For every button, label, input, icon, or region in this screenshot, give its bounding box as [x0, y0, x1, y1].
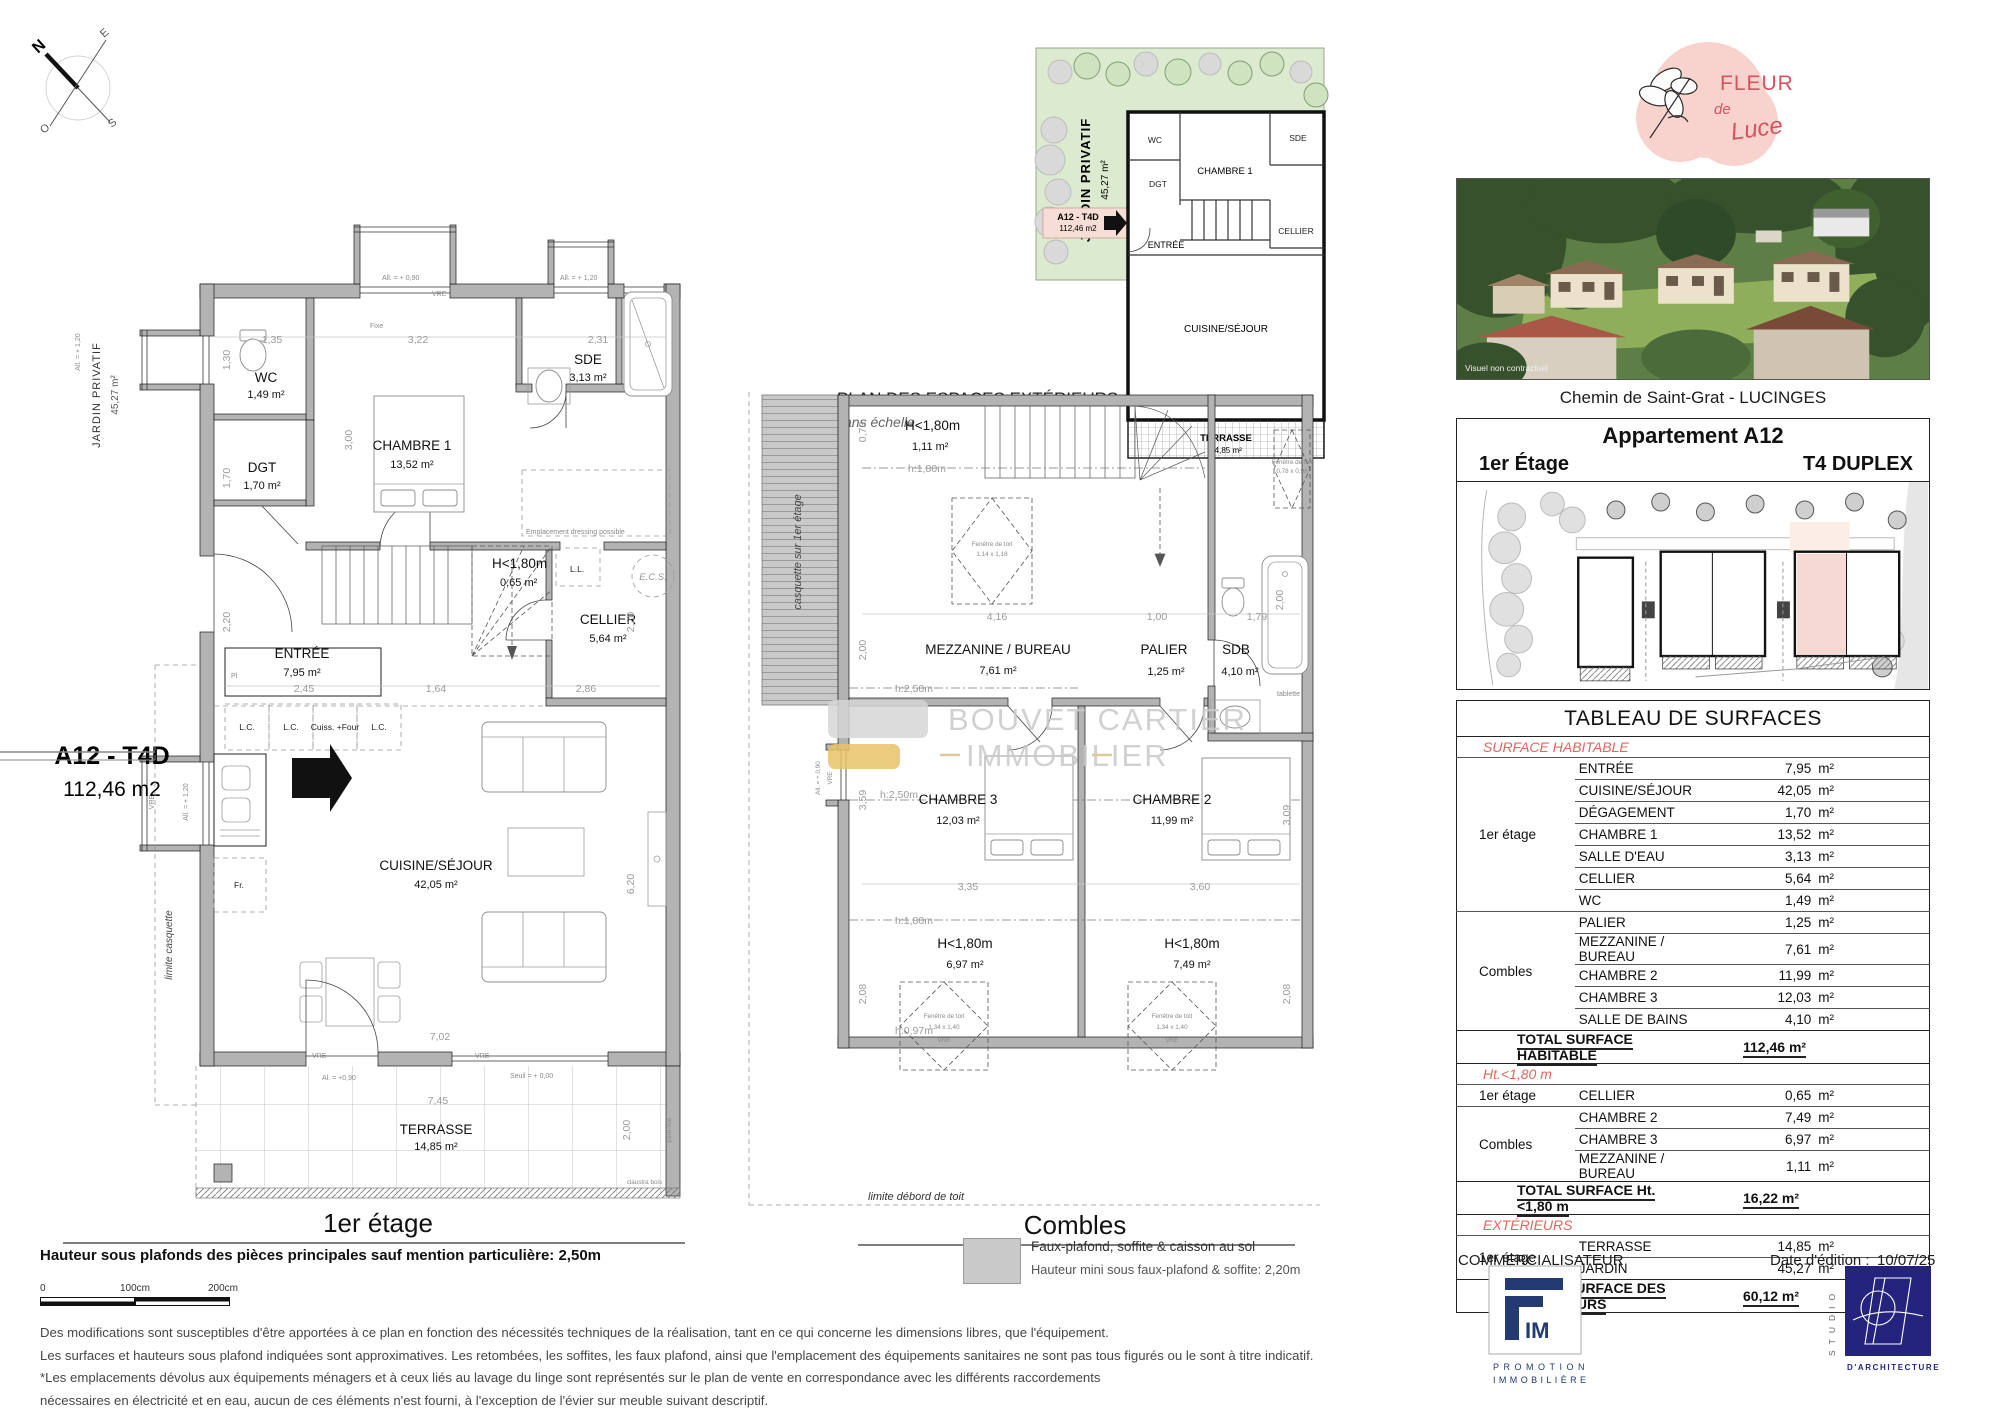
surface-room-value: 1,49 [1693, 890, 1811, 912]
dgt-label: DGT [248, 460, 277, 475]
surface-total-value: 112,46 m² [1693, 1031, 1930, 1064]
wc-label: WC [255, 370, 278, 385]
dim: 1,70 [221, 468, 233, 489]
surface-row: 1er étageCELLIER0,65m² [1457, 1085, 1930, 1107]
roof-window-label: Fenêtre de toit [972, 541, 1013, 548]
roof-window-stairs: Fenêtre de toit 1,14 x 1,18 [952, 498, 1032, 604]
ext-sde: SDE [1289, 133, 1307, 143]
scale-0: 0 [40, 1283, 46, 1294]
surface-room-value: 7,95 [1693, 758, 1811, 780]
kitchen-lc2: L.C. [283, 722, 299, 732]
sdb-bathtub [1262, 556, 1308, 674]
surface-row: ComblesCHAMBRE 27,49m² [1457, 1107, 1930, 1129]
surface-room-unit: m² [1811, 846, 1929, 868]
dim: 3,22 [408, 334, 429, 346]
chambre2-label: CHAMBRE 2 [1133, 792, 1212, 807]
ext-ch1: CHAMBRE 1 [1197, 166, 1252, 177]
surface-section-label: Ht.<1,80 m [1457, 1064, 1930, 1085]
combles-vre: VRE [827, 772, 834, 785]
legend-line1: Faux-plafond, soffite & caisson au sol [1031, 1239, 1255, 1254]
h097-line-label: h:0,97m [895, 1025, 933, 1037]
unit-area-label: 112,46 m2 [63, 778, 161, 801]
entree-area: 7,95 m² [283, 667, 321, 679]
bed-chambre2 [1202, 758, 1290, 860]
h180-zone2-area: 7,49 m² [1173, 959, 1211, 971]
site-unit-highlight [1797, 554, 1847, 654]
site-buildings [1578, 552, 1899, 667]
fixe-label: Fixe [370, 323, 383, 330]
brand-word1: FLEUR [1720, 72, 1794, 95]
wc-area: 1,49 m² [247, 389, 285, 401]
ext-cellier: CELLIER [1278, 226, 1313, 236]
roof-window-ch2: Fenêtre de toit 1,34 x 1,40 VRE [1128, 982, 1216, 1070]
plans-canvas: N E S O All. = + 0,90 Al [0, 0, 1440, 1413]
dim: 2,00 [1274, 590, 1286, 611]
dim: 6,20 [625, 874, 637, 895]
surface-room-value: 42,05 [1693, 780, 1811, 802]
chambre3-label: CHAMBRE 3 [919, 792, 998, 807]
apartment-type: T4 DUPLEX [1803, 453, 1913, 476]
sdb-wc [1222, 578, 1244, 616]
unit-code-label: A12 - T4D [54, 742, 169, 770]
surface-section-label: EXTÉRIEURS [1457, 1215, 1930, 1236]
surface-section-label: SURFACE HABITABLE [1457, 737, 1930, 758]
surface-room-label: CHAMBRE 3 [1575, 1129, 1693, 1151]
surface-room-unit: m² [1811, 758, 1929, 780]
surface-room-label: WC [1575, 890, 1693, 912]
scale-200: 200cm [208, 1283, 238, 1294]
surface-group-label: 1er étage [1457, 1085, 1575, 1107]
terrasse-label: TERRASSE [400, 1122, 473, 1137]
legend-swatch [963, 1238, 1021, 1284]
surface-section-row: SURFACE HABITABLE [1457, 737, 1930, 758]
scale-100: 100cm [120, 1283, 150, 1294]
scale-segment [135, 1297, 230, 1306]
limite-debord-label: limite débord de toit [868, 1191, 965, 1203]
surface-room-unit: m² [1811, 824, 1929, 846]
dim: 2,20 [221, 612, 233, 633]
surface-total-value-text: 16,22 m² [1743, 1190, 1799, 1209]
terrasse: VRE VRE Al. = +0,90 Seuil = + 0,00 7,45 … [196, 1053, 680, 1198]
combles-h180-area: 1,11 m² [912, 441, 949, 453]
dim: 2,86 [576, 683, 597, 695]
floor-plan-combles: casquette sur 1er étage limite débord de… [749, 392, 1320, 1245]
surface-total-row: TOTAL SURFACE HABITABLE112,46 m² [1457, 1031, 1930, 1064]
mezzanine-area: 7,61 m² [979, 665, 1017, 677]
floor-plan-1er-etage: All. = + 0,90 All. = + 1,20 VRE Fixe All… [0, 225, 685, 1243]
surface-group-label: Combles [1457, 1107, 1575, 1182]
site-plan [1457, 482, 1928, 689]
surface-total-row: TOTAL SURFACE Ht. <1,80 m16,22 m² [1457, 1182, 1930, 1215]
sdb-area: 4,10 m² [1221, 666, 1259, 678]
surface-room-label: MEZZANINE / BUREAU [1575, 934, 1693, 965]
surfaces-table-title: TABLEAU DE SURFACES [1457, 701, 1930, 737]
sde-label: SDE [574, 352, 602, 367]
sde-area: 3,13 m² [569, 372, 607, 384]
dim: 1,64 [426, 683, 447, 695]
ext-wc: WC [1148, 135, 1162, 145]
apartment-card: Appartement A12 1er Étage T4 DUPLEX [1456, 418, 1930, 690]
surface-room-value: 12,03 [1693, 987, 1811, 1009]
dim: 2,20 [625, 612, 637, 633]
dim: 7,02 [430, 1031, 451, 1043]
dim: 1,00 [1147, 611, 1168, 623]
compass-e: E [98, 26, 111, 40]
studio-vertical-text: STUDIO [1827, 1288, 1837, 1356]
ext-jardin-area: 45,27 m² [1100, 160, 1111, 200]
sdb-label: SDB [1222, 642, 1250, 657]
surface-room-unit: m² [1811, 1151, 1929, 1182]
staircase [322, 546, 472, 624]
dim: 3,59 [857, 790, 869, 811]
surface-room-label: CELLIER [1575, 868, 1693, 890]
surface-room-value: 13,52 [1693, 824, 1811, 846]
roof-window-vre: VRE [938, 1037, 951, 1044]
watermark-line2: IMMOBILIER [966, 738, 1169, 773]
fim-line2: IMMOBILIÈRE [1493, 1375, 1589, 1385]
surface-room-unit: m² [1811, 1107, 1929, 1129]
surface-room-unit: m² [1811, 965, 1929, 987]
surface-room-unit: m² [1811, 890, 1929, 912]
combles-h180-label: H<1,80m [905, 418, 960, 433]
surface-room-value: 1,11 [1693, 1151, 1811, 1182]
surface-room-value: 5,64 [1693, 868, 1811, 890]
chambre1-area: 13,52 m² [390, 459, 434, 471]
h180-zone2-label: H<1,80m [1164, 936, 1219, 951]
surfaces-table: TABLEAU DE SURFACES SURFACE HABITABLE1er… [1456, 700, 1930, 1313]
surface-room-unit: m² [1811, 1009, 1929, 1031]
tv-board [648, 812, 666, 906]
cuisine-area: 42,05 m² [414, 879, 458, 891]
apartment-title: Appartement A12 [1457, 423, 1929, 449]
studio-bottom-text: D'ARCHITECTURE [1847, 1363, 1940, 1372]
h180-zone3-label: H<1,80m [937, 936, 992, 951]
scale-bar: 0 100cm 200cm [40, 1283, 260, 1313]
surface-total-value-text: 60,12 m² [1743, 1288, 1799, 1307]
roof-window-label: Fenêtre de toit [1272, 459, 1313, 466]
dim: 4,16 [987, 611, 1008, 623]
surface-room-unit: m² [1811, 1129, 1929, 1151]
brand-word2: de [1714, 101, 1731, 118]
h250-line-label2: h:2,50m [880, 789, 918, 801]
sofa-1 [482, 722, 606, 792]
fim-logo: IM PROMOTION IMMOBILIÈRE [1485, 1264, 1605, 1394]
kitchen-lc3: L.C. [371, 722, 387, 732]
allege-120-label: All. = + 1,20 [560, 275, 597, 282]
compass-o: O [38, 121, 53, 136]
dim: 3,60 [1190, 881, 1211, 893]
dim: 7,45 [428, 1095, 449, 1107]
apartment-card-header: Appartement A12 1er Étage T4 DUPLEX [1457, 419, 1929, 482]
lave-linge-label: L.L. [570, 564, 584, 574]
vre-label: VRE [432, 291, 447, 298]
combles-all090: All. = + 0,90 [815, 761, 822, 795]
surfaces-table-title-row: TABLEAU DE SURFACES [1457, 701, 1930, 737]
surface-group-label: Combles [1457, 912, 1575, 1031]
sofa-2 [482, 912, 606, 982]
ext-entree: ENTRÉE [1148, 240, 1185, 250]
surface-room-label: CUISINE/SÉJOUR [1575, 780, 1693, 802]
plan1-title: 1er étage [323, 1208, 433, 1238]
mezzanine-label: MEZZANINE / BUREAU [925, 642, 1071, 657]
surface-room-value: 1,70 [1693, 802, 1811, 824]
dim: 3,09 [1281, 805, 1293, 826]
surface-total-value-text: 112,46 m² [1743, 1039, 1806, 1058]
roof-window-vre: VRE [1166, 1037, 1179, 1044]
surface-room-unit: m² [1811, 912, 1929, 934]
surface-row: ComblesPALIER1,25m² [1457, 912, 1930, 934]
ext-unit-area: 112,46 m2 [1059, 224, 1097, 233]
palier-label: PALIER [1140, 642, 1187, 657]
surface-room-label: CHAMBRE 3 [1575, 987, 1693, 1009]
compass-s: S [106, 116, 119, 130]
kitchen-pl: Pl [231, 673, 238, 680]
address-line: Chemin de Saint-Grat - LUCINGES [1456, 388, 1930, 408]
disclaimer-text: Des modifications sont susceptibles d'êt… [40, 1322, 1550, 1413]
h180-line-label: h:1,80m [908, 463, 946, 475]
dim: 2,08 [1281, 984, 1293, 1005]
h180-label: H<1,80m [492, 556, 547, 571]
surface-room-value: 11,99 [1693, 965, 1811, 987]
surface-room-value: 1,25 [1693, 912, 1811, 934]
surface-room-label: PALIER [1575, 912, 1693, 934]
watermark: BOUVET CARTIER IMMOBILIER [828, 700, 1247, 773]
surface-row: 1er étageENTRÉE7,95m² [1457, 758, 1930, 780]
surface-room-label: CHAMBRE 2 [1575, 1107, 1693, 1129]
surface-room-unit: m² [1811, 802, 1929, 824]
ext-dgt: DGT [1149, 179, 1167, 189]
kitchen-four: Cuiss. +Four [311, 722, 360, 732]
dim: 3,35 [958, 881, 979, 893]
disclaimer-line: Des modifications sont susceptibles d'êt… [40, 1322, 1550, 1345]
chambre2-area: 11,99 m² [1151, 815, 1194, 827]
ext-unit-code: A12 - T4D [1057, 212, 1099, 222]
compass-rose: N E S O [29, 26, 119, 136]
roof-window-size: 1,34 x 1,40 [1156, 1024, 1188, 1031]
unit-arrow-icon [292, 744, 352, 812]
surface-room-value: 7,61 [1693, 934, 1811, 965]
ecs-label: E.C.S. [639, 572, 666, 583]
limite-casquette-label: limite casquette [164, 910, 175, 980]
surface-room-label: DÉGAGEMENT [1575, 802, 1693, 824]
surface-room-value: 6,97 [1693, 1129, 1811, 1151]
fim-mark-text: IM [1525, 1318, 1549, 1343]
fim-line1: PROMOTION [1493, 1362, 1589, 1372]
surface-total-value: 16,22 m² [1693, 1182, 1930, 1215]
dining-table [300, 958, 400, 1026]
ext-cuisine: CUISINE/SÉJOUR [1184, 322, 1268, 335]
surface-room-label: CHAMBRE 2 [1575, 965, 1693, 987]
roof-window-size: 0,78 x 0,98 [1276, 468, 1308, 475]
dim: 1,35 [262, 334, 283, 346]
tablette-label: tablette [1277, 691, 1300, 698]
dim: 2,31 [588, 334, 609, 346]
kitchen-fr: Fr. [234, 880, 244, 890]
casquette-label: casquette sur 1er étage [792, 494, 804, 610]
dim: 2,00 [621, 1120, 633, 1141]
dim: 2,08 [857, 984, 869, 1005]
cuisine-label: CUISINE/SÉJOUR [379, 858, 493, 873]
right-panel: FLEUR de Luce Visuel non contractuel Che… [1440, 0, 2000, 1413]
disclaimer-line: nécessaires en électricité et en eau, au… [40, 1390, 1550, 1413]
dim: 0,73 [857, 422, 869, 443]
h180-line-label2: h:1,80m [895, 915, 933, 927]
terrasse-area: 14,85 m² [414, 1141, 458, 1153]
terrasse-vre2: VRE [475, 1053, 490, 1060]
brand-logo: FLEUR de Luce [1608, 34, 1798, 172]
dressing-note: Emplacement dressing possible [526, 529, 625, 536]
cellier-area: 5,64 m² [589, 633, 627, 645]
surface-room-label: SALLE D'EAU [1575, 846, 1693, 868]
kitchen-lc1: L.C. [239, 722, 255, 732]
surface-total-label: TOTAL SURFACE HABITABLE [1457, 1031, 1694, 1064]
terrasse-seuil: Seuil = + 0,00 [510, 1073, 553, 1080]
surface-room-value: 7,49 [1693, 1107, 1811, 1129]
roof-window-label: Fenêtre de toit [924, 1013, 965, 1020]
sde-basin [528, 368, 570, 404]
bed-chambre1 [374, 396, 464, 512]
surface-room-label: CHAMBRE 1 [1575, 824, 1693, 846]
chambre1-label: CHAMBRE 1 [373, 438, 452, 453]
apartment-floor: 1er Étage [1479, 453, 1569, 476]
terrasse-al: Al. = +0,90 [322, 1075, 356, 1082]
h180-zone3-area: 6,97 m² [946, 959, 984, 971]
brand-word3: Luce [1729, 112, 1784, 146]
jardin-privatif-area: 45,27 m² [110, 375, 121, 415]
surface-room-label: ENTRÉE [1575, 758, 1693, 780]
surface-room-label: SALLE DE BAINS [1575, 1009, 1693, 1031]
claustra-label: claustra bois [627, 1179, 662, 1186]
disclaimer-line: *Les emplacements dévolus aux équipement… [40, 1367, 1550, 1390]
allege-120-left2-label: All. = + 1,20 [183, 783, 190, 820]
surface-total-label-text: TOTAL SURFACE HABITABLE [1517, 1031, 1633, 1066]
terrasse-vre1: VRE [312, 1053, 327, 1060]
dim: 1,30 [221, 350, 233, 371]
roof-window-size: 1,14 x 1,18 [976, 551, 1008, 558]
coffee-table [508, 828, 584, 876]
photo-caption: Visuel non contractuel [1465, 363, 1548, 373]
dgt-area: 1,70 m² [243, 480, 281, 492]
roof-window-size: 1,34 x 1,40 [928, 1024, 960, 1031]
entree-label: ENTRÉE [275, 646, 330, 661]
dim: 2,45 [294, 683, 315, 695]
scale-segment [40, 1297, 135, 1306]
watermark-line1: BOUVET CARTIER [948, 702, 1247, 737]
surface-total-label-text: TOTAL SURFACE Ht. <1,80 m [1517, 1182, 1655, 1217]
surface-room-unit: m² [1811, 780, 1929, 802]
site-garden-highlight [1790, 522, 1850, 552]
dim: 1,79 [1247, 611, 1268, 623]
surface-room-unit: m² [1811, 934, 1929, 965]
allege-090-label: All. = + 0,90 [382, 275, 419, 282]
development-photo: Visuel non contractuel [1456, 178, 1930, 380]
surface-room-label: MEZZANINE / BUREAU [1575, 1151, 1693, 1182]
surface-section-row: EXTÉRIEURS [1457, 1215, 1930, 1236]
disclaimer-line: Les surfaces et hauteurs sous plafond in… [40, 1345, 1550, 1368]
shower [624, 292, 672, 396]
surface-total-label: TOTAL SURFACE Ht. <1,80 m [1457, 1182, 1694, 1215]
surface-room-value: 3,13 [1693, 846, 1811, 868]
allege-120-left-label: All. = + 1,20 [75, 333, 82, 370]
surface-section-row: Ht.<1,80 m [1457, 1064, 1930, 1085]
surface-room-unit: m² [1811, 1085, 1929, 1107]
jardin-privatif-label: JARDIN PRIVATIF [91, 342, 103, 448]
palier-area: 1,25 m² [1147, 666, 1185, 678]
surface-group-label: 1er étage [1457, 758, 1575, 912]
surface-room-unit: m² [1811, 987, 1929, 1009]
pare-vue-label: pare-vue [666, 1117, 673, 1142]
dim: 2,00 [857, 640, 869, 661]
surface-room-unit: m² [1811, 868, 1929, 890]
surface-room-value: 4,10 [1693, 1009, 1811, 1031]
studio-architecture-logo: STUDIO D'ARCHITECTURE [1823, 1264, 1943, 1394]
surface-room-value: 0,65 [1693, 1085, 1811, 1107]
surface-room-label: CELLIER [1575, 1085, 1693, 1107]
h250-line-label: h:2,50m [895, 683, 933, 695]
legend-line2: Hauteur mini sous faux-plafond & soffite… [1031, 1262, 1300, 1277]
plan2-title: Combles [1024, 1210, 1127, 1240]
dim: 3,00 [343, 430, 355, 451]
roof-window-label: Fenêtre de toit [1152, 1013, 1193, 1020]
chambre3-area: 12,03 m² [936, 815, 980, 827]
h180-area: 0,65 m² [500, 577, 538, 589]
